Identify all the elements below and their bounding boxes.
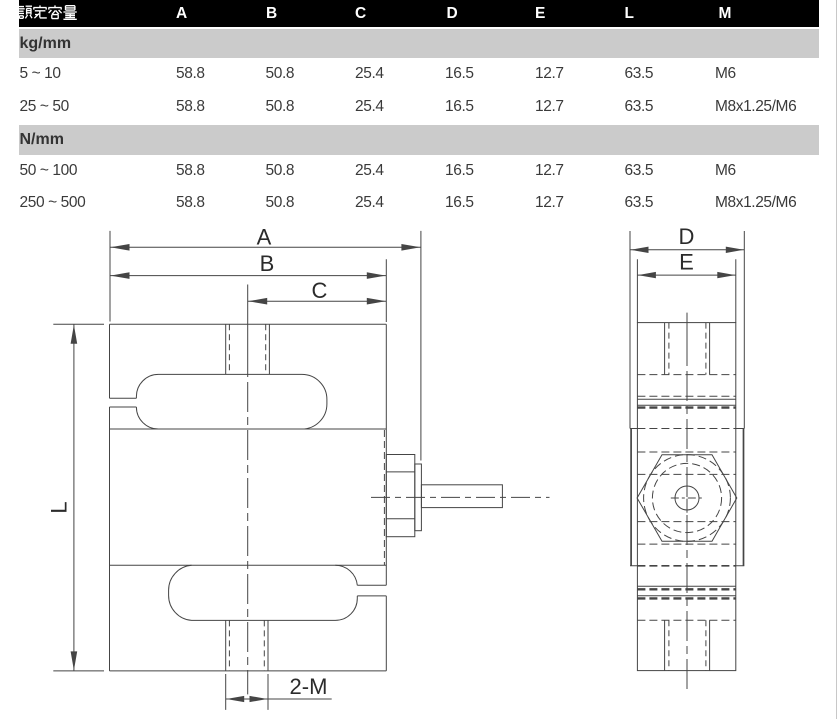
svg-text:D: D <box>679 224 695 249</box>
svg-text:L: L <box>47 501 72 513</box>
svg-text:2-M: 2-M <box>290 674 328 699</box>
svg-text:A: A <box>257 225 272 250</box>
svg-text:E: E <box>679 250 694 275</box>
svg-text:C: C <box>312 278 328 303</box>
svg-text:B: B <box>260 251 275 276</box>
